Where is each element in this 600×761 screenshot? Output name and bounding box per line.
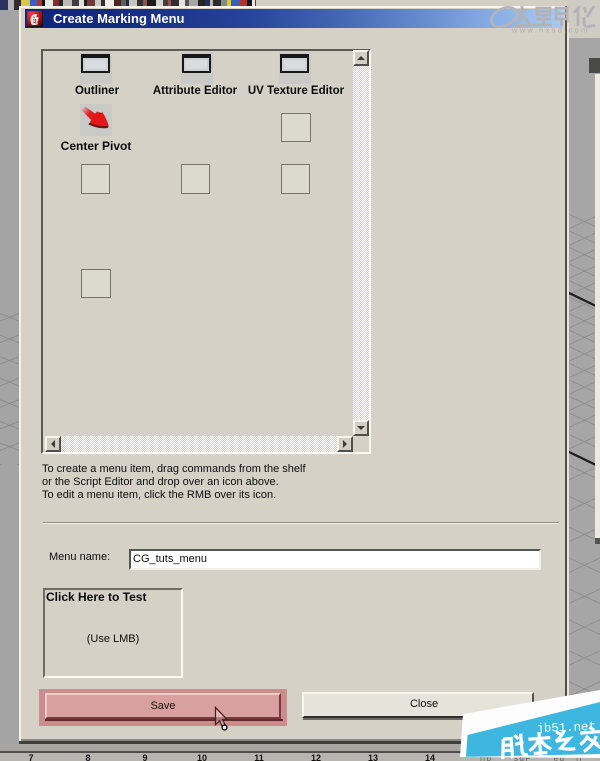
svg-text:www.hxsd.com: www.hxsd.com bbox=[511, 26, 590, 35]
